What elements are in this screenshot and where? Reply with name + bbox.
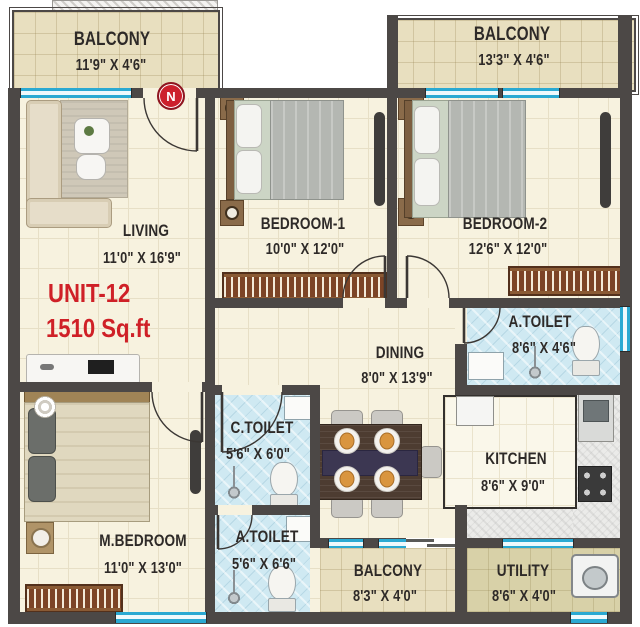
label-bedroom2-dims: 12'6" X 12'0"	[469, 241, 548, 259]
label-mbedroom-dims: 11'0" X 13'0"	[104, 560, 182, 578]
tv-unit-knobs	[40, 364, 54, 370]
label-dining-name: DINING	[376, 343, 425, 363]
wall	[388, 16, 398, 88]
wall	[618, 16, 632, 88]
bedroom1-wardrobe	[374, 112, 385, 206]
label-atoilet1-dims: 8'6" X 4'6"	[512, 340, 576, 358]
shower-icon	[226, 570, 242, 606]
label-balcony-tl-name: BALCONY	[74, 29, 150, 51]
window	[502, 539, 574, 548]
bed1-blanket	[270, 100, 344, 200]
label-kitchen-name: KITCHEN	[485, 449, 547, 469]
label-atoilet2-dims: 5'6" X 6'6"	[232, 556, 296, 574]
wall	[205, 88, 215, 392]
shower-icon	[226, 466, 242, 500]
pillow	[414, 106, 440, 154]
window	[20, 88, 132, 98]
label-bedroom1-name: BEDROOM-1	[261, 214, 346, 234]
label-ctoilet-dims: 5'6" X 6'0"	[226, 446, 290, 464]
wall	[455, 385, 632, 395]
label-bedroom2-name: BEDROOM-2	[463, 214, 548, 234]
label-kitchen-dims: 8'6" X 9'0"	[481, 478, 545, 496]
atoilet-door-opening	[218, 505, 252, 515]
label-utility-name: UTILITY	[497, 561, 550, 581]
label-utility-dims: 8'6" X 4'0"	[492, 588, 556, 606]
sink	[468, 352, 504, 380]
wall	[310, 392, 320, 548]
pillow	[28, 456, 56, 502]
room-balcony-top-left	[12, 10, 220, 92]
floor-plan: BALCONY 11'9" X 4'6" BALCONY 13'3" X 4'6…	[0, 0, 640, 627]
coffee-table	[74, 118, 110, 154]
master-window-grill	[25, 584, 123, 613]
label-balcony-tr-dims: 13'3" X 4'6"	[478, 52, 549, 70]
master-wardrobe	[190, 430, 201, 494]
plant-icon	[84, 126, 94, 136]
north-compass-icon: N	[157, 82, 185, 110]
label-balcony-b-name: BALCONY	[354, 561, 422, 581]
label-living-dims: 11'0" X 16'9"	[103, 250, 181, 268]
toilet-tank	[268, 598, 296, 612]
pillow	[236, 104, 262, 148]
wall	[455, 505, 467, 624]
plate	[334, 466, 360, 492]
bedroom1-door-opening	[343, 298, 385, 308]
kitchen-sink-basin	[583, 400, 609, 422]
bedroom2-window-grill	[508, 266, 622, 296]
window	[425, 88, 499, 98]
label-dining-dims: 8'0" X 13'9"	[361, 370, 432, 388]
tv-icon	[88, 360, 114, 374]
label-balcony-tl-dims: 11'9" X 4'6"	[76, 57, 147, 75]
wall	[205, 382, 215, 624]
label-atoilet1-name: A.TOILET	[509, 312, 572, 332]
label-balcony-b-dims: 8'3" X 4'0"	[353, 588, 417, 606]
dining-chair	[420, 446, 442, 478]
bedroom2-door-opening	[407, 298, 449, 308]
label-mbedroom-name: M.BEDROOM	[99, 531, 187, 551]
window	[378, 539, 407, 548]
unit-id: UNIT-12	[48, 278, 130, 309]
label-balcony-tr-name: BALCONY	[474, 24, 550, 46]
unit-area: 1510 Sq.ft	[46, 313, 150, 344]
nightstand	[220, 200, 244, 226]
sliding-panel	[427, 544, 455, 547]
plate	[374, 466, 400, 492]
fridge	[456, 396, 494, 426]
wall	[387, 88, 397, 308]
label-ctoilet-name: C.TOILET	[231, 418, 294, 438]
stove	[578, 466, 612, 502]
sofa-horizontal	[26, 198, 112, 228]
window	[620, 306, 630, 352]
plate	[374, 428, 400, 454]
bedside-lamp	[34, 396, 56, 418]
pillow	[236, 150, 262, 194]
sliding-panel	[406, 539, 434, 542]
toilet-bowl	[270, 462, 298, 496]
master-door-opening	[152, 382, 202, 392]
ottoman	[76, 154, 106, 180]
window	[502, 88, 560, 98]
window	[328, 539, 364, 548]
washing-machine	[571, 554, 619, 598]
label-atoilet2-name: A.TOILET	[236, 527, 299, 547]
label-bedroom1-dims: 10'0" X 12'0"	[266, 241, 345, 259]
sink	[284, 396, 312, 420]
ctoilet-door-opening	[222, 385, 282, 395]
window	[570, 612, 608, 623]
wall	[8, 88, 20, 624]
table-lamp	[31, 528, 51, 548]
toilet-tank	[572, 360, 600, 376]
wall	[8, 612, 632, 624]
plate	[334, 428, 360, 454]
toilet-bowl	[572, 326, 600, 362]
window	[115, 612, 207, 623]
bedroom2-wardrobe	[600, 112, 611, 208]
bed2-blanket	[448, 100, 526, 218]
toilet-door-opening	[455, 308, 467, 344]
label-living-name: LIVING	[123, 221, 169, 241]
pillow	[414, 158, 440, 206]
